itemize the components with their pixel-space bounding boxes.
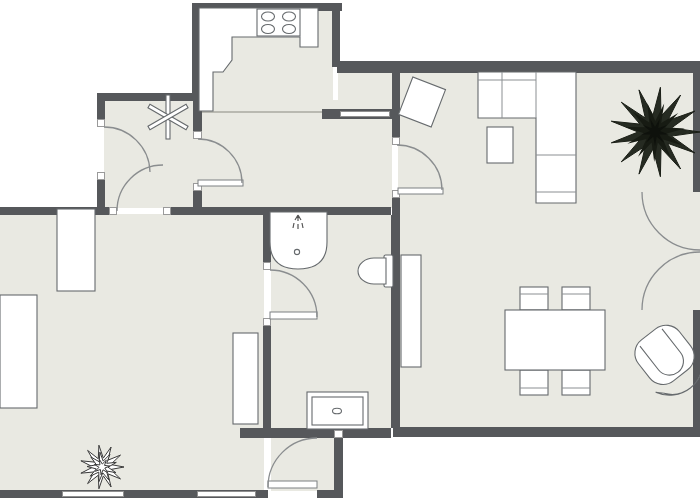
dining-table xyxy=(505,310,605,370)
bedroom-door[interactable] xyxy=(117,165,163,211)
dining-chair xyxy=(520,370,548,395)
dining-chair xyxy=(520,287,548,310)
door-swing-arc xyxy=(198,139,242,183)
sink-vanity[interactable] xyxy=(307,392,368,429)
door-swing-arc xyxy=(268,438,317,487)
burner xyxy=(283,25,296,34)
sideboard[interactable] xyxy=(401,255,421,367)
burner xyxy=(283,12,296,21)
door-leaf xyxy=(268,481,317,488)
bed[interactable] xyxy=(0,295,37,408)
floor-plan xyxy=(0,0,700,500)
hallway-left-door[interactable] xyxy=(104,127,150,172)
shower-drain xyxy=(294,249,299,254)
burner xyxy=(262,12,275,21)
plan-overlay xyxy=(0,0,700,500)
door-leaf xyxy=(270,312,317,319)
dining-chair xyxy=(562,287,590,310)
entry-door[interactable] xyxy=(268,438,317,488)
kitchen-door[interactable] xyxy=(198,139,243,186)
dining-set[interactable] xyxy=(505,287,605,395)
stove[interactable] xyxy=(257,9,300,36)
door-swing-arc xyxy=(270,270,317,317)
living-room-door[interactable] xyxy=(397,145,443,194)
armchair[interactable] xyxy=(625,316,700,407)
media-unit[interactable] xyxy=(398,77,445,127)
door-swing-arc xyxy=(397,145,442,190)
door-leaf xyxy=(198,180,243,186)
ceiling-fan-icon[interactable] xyxy=(148,95,188,139)
toilet[interactable] xyxy=(358,255,393,287)
wardrobe[interactable] xyxy=(57,209,95,291)
living-room-plant[interactable] xyxy=(611,87,700,176)
dresser[interactable] xyxy=(233,333,258,424)
coffee-table[interactable] xyxy=(487,127,513,163)
door-swing-arc-top xyxy=(642,192,700,250)
faucet xyxy=(333,408,342,414)
door-swing-arc xyxy=(104,127,150,172)
door-swing-arc xyxy=(117,165,163,211)
balcony-french-doors[interactable] xyxy=(642,192,700,310)
dining-chair xyxy=(562,370,590,395)
door-leaf xyxy=(398,188,443,194)
bedroom-plant[interactable] xyxy=(81,445,124,489)
bathroom-door[interactable] xyxy=(270,270,317,319)
shower[interactable] xyxy=(270,212,327,269)
toilet-bowl xyxy=(358,258,386,284)
burner xyxy=(262,25,275,34)
media-unit-body xyxy=(398,77,445,127)
door-swing-arc-bottom xyxy=(642,252,700,310)
